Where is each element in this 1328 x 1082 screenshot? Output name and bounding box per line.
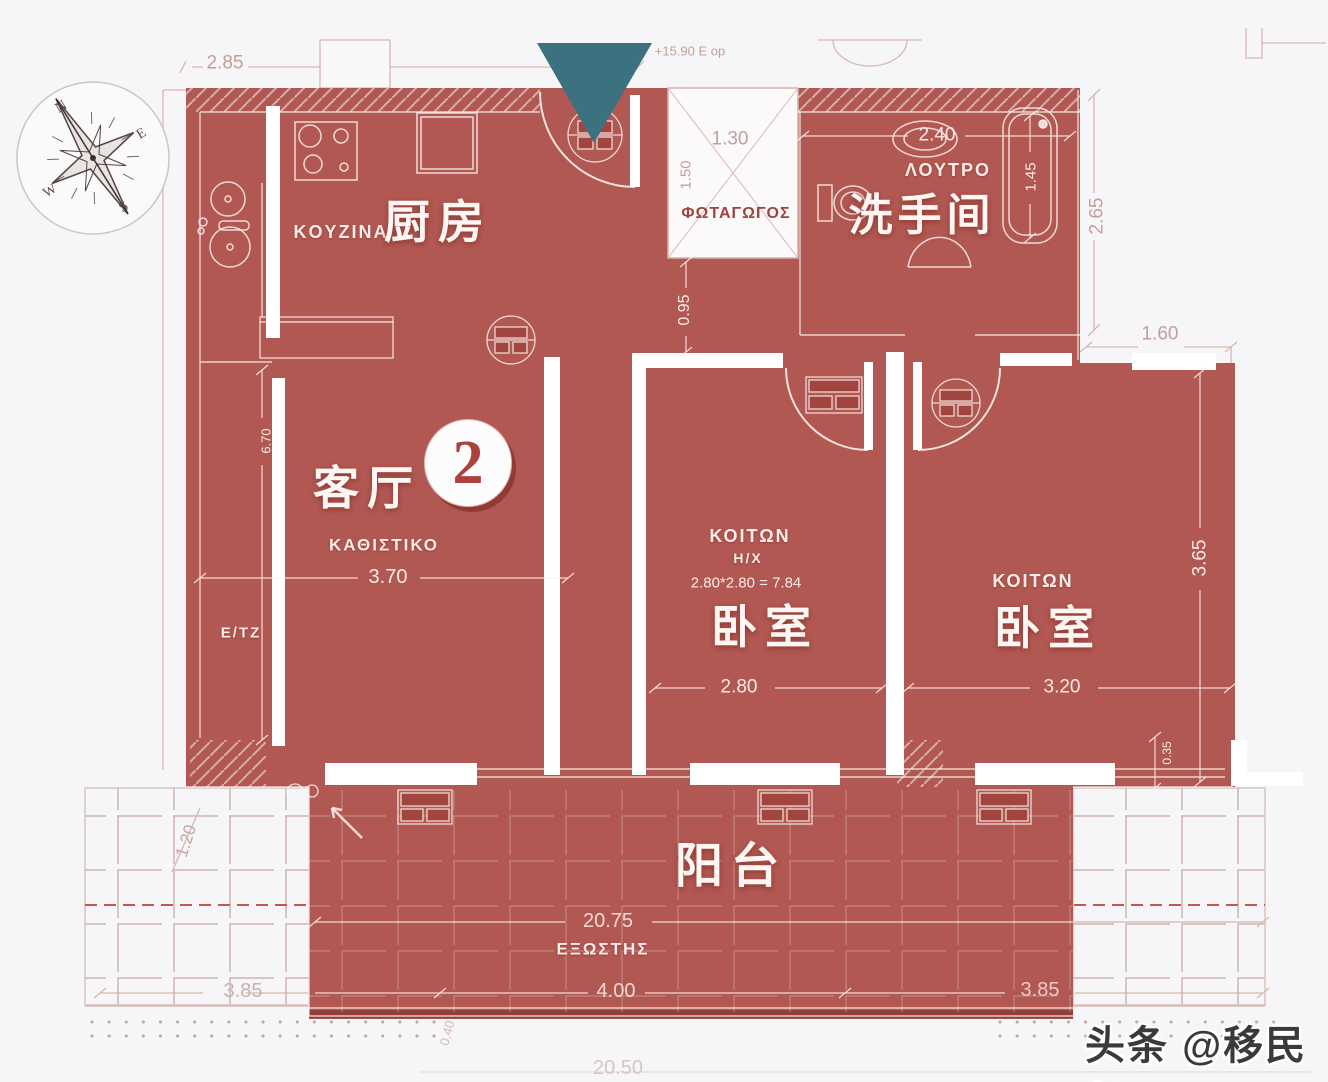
bedroom2-label-cn: 卧室 <box>994 605 1102 651</box>
living-label-greek: ΚΑΘΙΣΤΙΚΟ <box>329 537 439 554</box>
floorplan-image: N E S W 2.85 +15.90 E op 1.30 1.50 ΦΩΤΑΓ… <box>0 0 1328 1082</box>
watermark: 头条 @移民帮 <box>1085 1013 1328 1082</box>
bedroom1-label-greek: ΚΟΙΤΩΝ <box>709 527 790 545</box>
lightwell-label-greek: ΦΩΤΑΓΩΓΟΣ <box>681 206 790 222</box>
balcony-tiles <box>309 790 1073 1012</box>
kitchen-label-greek: KOYZINA <box>294 223 389 241</box>
balcony-label-cn: 阳台 <box>675 843 787 891</box>
dim-bedroom2-depth: 3.65 <box>1191 540 1210 577</box>
dim-balcony-section: 4.00 <box>597 981 636 1001</box>
dim-bedroom1-width: 2.80 <box>721 678 758 697</box>
living-fixture-label: E/TZ <box>221 626 262 641</box>
unit-number-badge: 2 <box>424 419 512 507</box>
living-label-cn: 客厅 <box>313 465 421 511</box>
dim-lightwell-width: 1.30 <box>712 130 749 149</box>
bedroom1-hx: H/X <box>733 551 762 565</box>
unit-number: 2 <box>453 428 484 499</box>
dim-total-width: 20.50 <box>593 1058 643 1078</box>
bedroom1-area: 2.80*2.80 = 7.84 <box>691 576 802 591</box>
dim-lightwell-height: 1.50 <box>679 160 694 189</box>
bedroom1-label-cn: 卧室 <box>711 604 819 650</box>
dim-living-width: 3.70 <box>369 567 408 587</box>
dim-hall: 0.95 <box>677 294 693 325</box>
dim-parapet: 0.35 <box>1161 741 1173 764</box>
dim-top-right: 1.60 <box>1142 325 1179 344</box>
compass-rose: N E S W <box>0 53 198 262</box>
bedroom2-label-greek: ΚΟΙΤΩΝ <box>992 572 1073 590</box>
dim-living-depth: 6.70 <box>260 428 273 453</box>
dim-bath-depth: 2.65 <box>1088 198 1107 235</box>
dim-bottom-right: 3.85 <box>1021 980 1060 1000</box>
dim-bedroom2-width: 3.20 <box>1044 678 1081 697</box>
floorplan-drawing: N E S W <box>0 0 1328 1082</box>
balcony-label-greek: ΕΞΩΣΤΗΣ <box>557 941 650 958</box>
dim-top-left: 2.85 <box>207 54 244 73</box>
kitchen-label-cn: 厨房 <box>384 199 492 245</box>
bathroom-label-cn: 洗手间 <box>849 194 996 238</box>
elevation-note: +15.90 E op <box>655 45 725 58</box>
dim-balcony-length: 20.75 <box>583 911 633 931</box>
bathroom-label-greek: ΛΟΥΤΡΟ <box>905 161 991 179</box>
dim-bath-width: 2.40 <box>919 126 956 145</box>
dim-tub-length: 1.45 <box>1024 162 1039 191</box>
dim-bottom-left: 3.85 <box>224 981 263 1001</box>
